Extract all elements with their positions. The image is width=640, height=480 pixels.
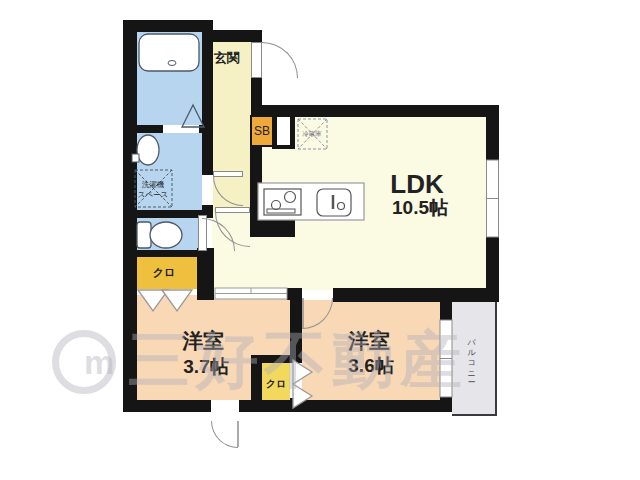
laundry-label-1: 洗濯機 xyxy=(142,180,165,190)
ldk-size: 10.5帖 xyxy=(392,195,448,221)
bedroom-b-size: 3.6帖 xyxy=(348,353,393,379)
wall xyxy=(202,30,213,175)
entrance-label: 玄関 xyxy=(214,49,240,67)
wall-kitchen-base xyxy=(250,207,295,237)
watermark-logo-letter: m xyxy=(84,337,114,387)
exterior-door-arc xyxy=(211,421,238,448)
cabinet-door xyxy=(277,117,290,145)
wall xyxy=(199,125,213,133)
wall xyxy=(239,400,452,412)
wall xyxy=(251,355,302,363)
bedroom-a-size: 3.7帖 xyxy=(183,354,228,380)
closet-b-opening xyxy=(290,363,302,398)
wall xyxy=(290,293,302,357)
entrance-door-arc xyxy=(262,42,298,78)
wall xyxy=(123,250,210,257)
bathroom-door-gap xyxy=(163,125,199,133)
wall xyxy=(123,20,213,32)
watermark-logo: m xyxy=(52,330,116,394)
bedroom-a-label: 洋室 xyxy=(182,327,224,355)
wall xyxy=(123,400,211,412)
laundry-label-2: スペース xyxy=(138,190,169,200)
refrigerator-label: 冷蔵庫 xyxy=(302,130,322,139)
washroom-door-gap xyxy=(202,175,213,205)
room-bathroom xyxy=(135,30,205,127)
floorplan: 玄関 LDK 10.5帖 洋室 3.7帖 洋室 3.6帖 クロ クロ SB 洗濯… xyxy=(0,0,640,480)
room-toilet xyxy=(135,216,205,252)
exterior-door-gap xyxy=(211,400,239,412)
bedroom-b-label: 洋室 xyxy=(348,327,390,355)
window xyxy=(487,160,499,237)
wall xyxy=(440,300,452,320)
wall xyxy=(333,288,499,302)
wall xyxy=(123,125,163,133)
balcony-label: バルコニー xyxy=(465,333,476,379)
wall-kitchen xyxy=(250,145,262,210)
entrance-door-leaf xyxy=(251,42,262,78)
wall xyxy=(202,30,262,42)
closet-a-label: クロ xyxy=(153,265,176,280)
shoe-box-label: SB xyxy=(254,124,270,138)
wall xyxy=(440,397,452,412)
wall xyxy=(486,105,499,160)
closet-b-label: クロ xyxy=(266,377,286,391)
